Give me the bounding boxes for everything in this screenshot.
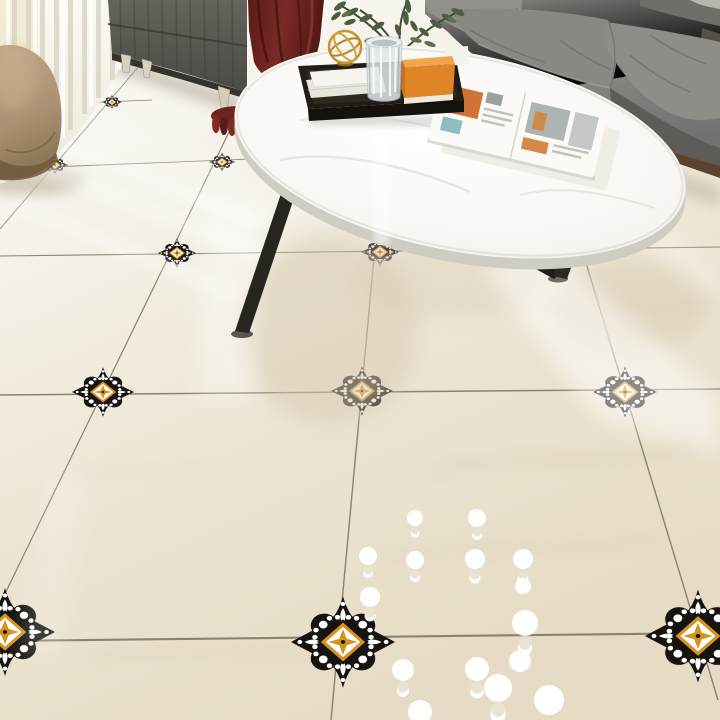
living-room-photo	[0, 0, 720, 720]
light-dot	[534, 685, 564, 715]
vase-reflection	[374, 108, 390, 246]
glass-vase	[366, 37, 402, 102]
light-dot	[509, 650, 531, 672]
light-dot	[515, 578, 531, 594]
orange-box	[401, 56, 455, 104]
